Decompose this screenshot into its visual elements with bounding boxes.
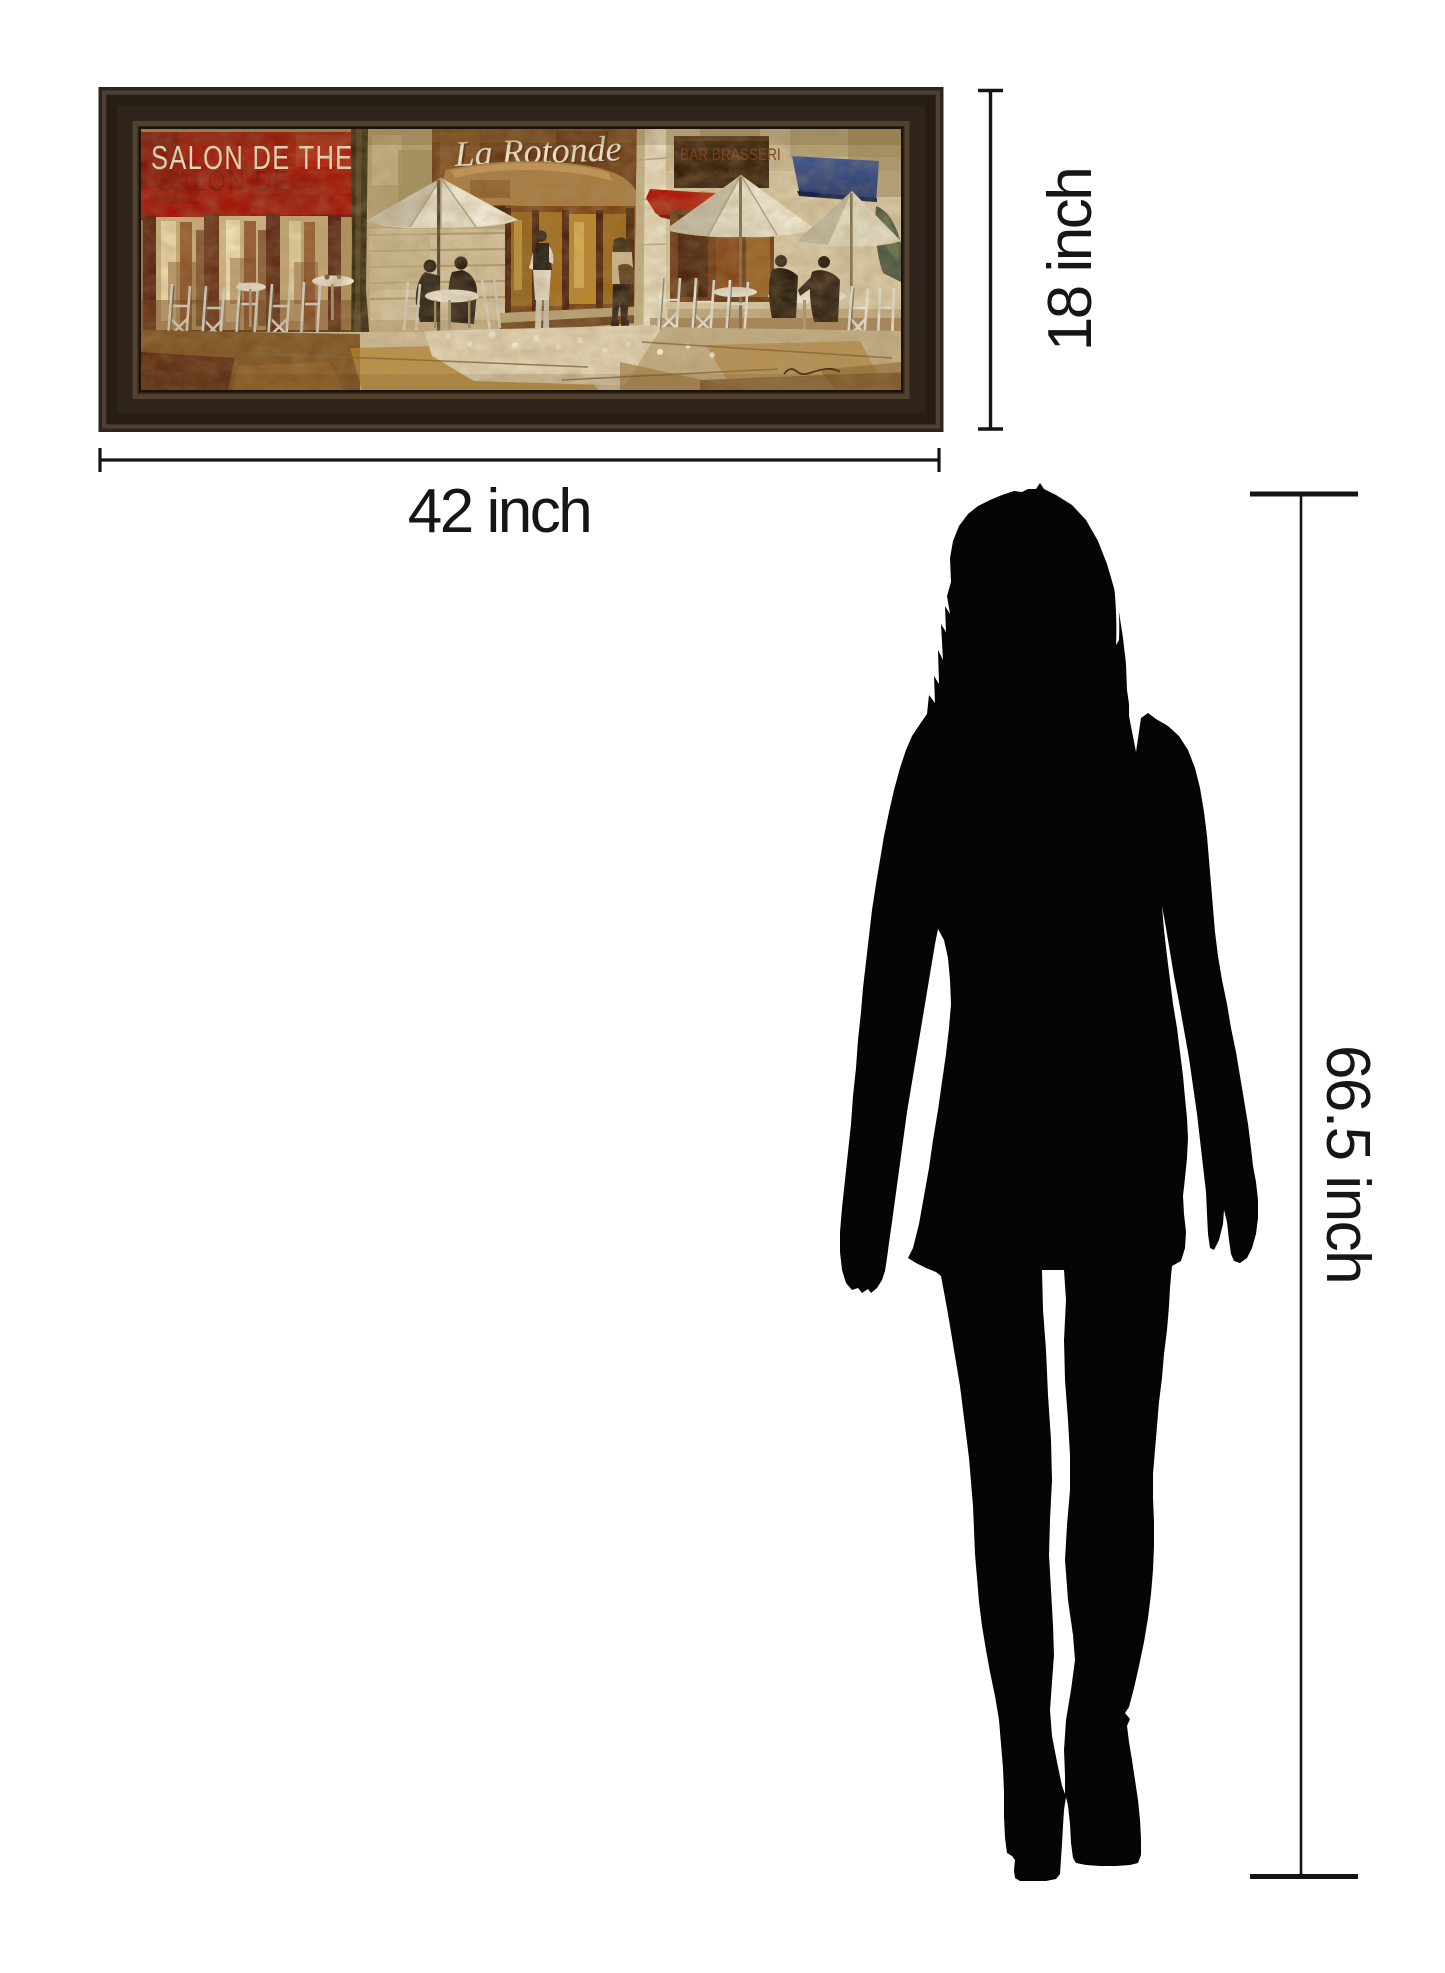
svg-text:18 inch: 18 inch: [1036, 169, 1105, 351]
svg-text:66.5 inch: 66.5 inch: [1313, 1045, 1382, 1283]
svg-text:42 inch: 42 inch: [408, 477, 590, 546]
